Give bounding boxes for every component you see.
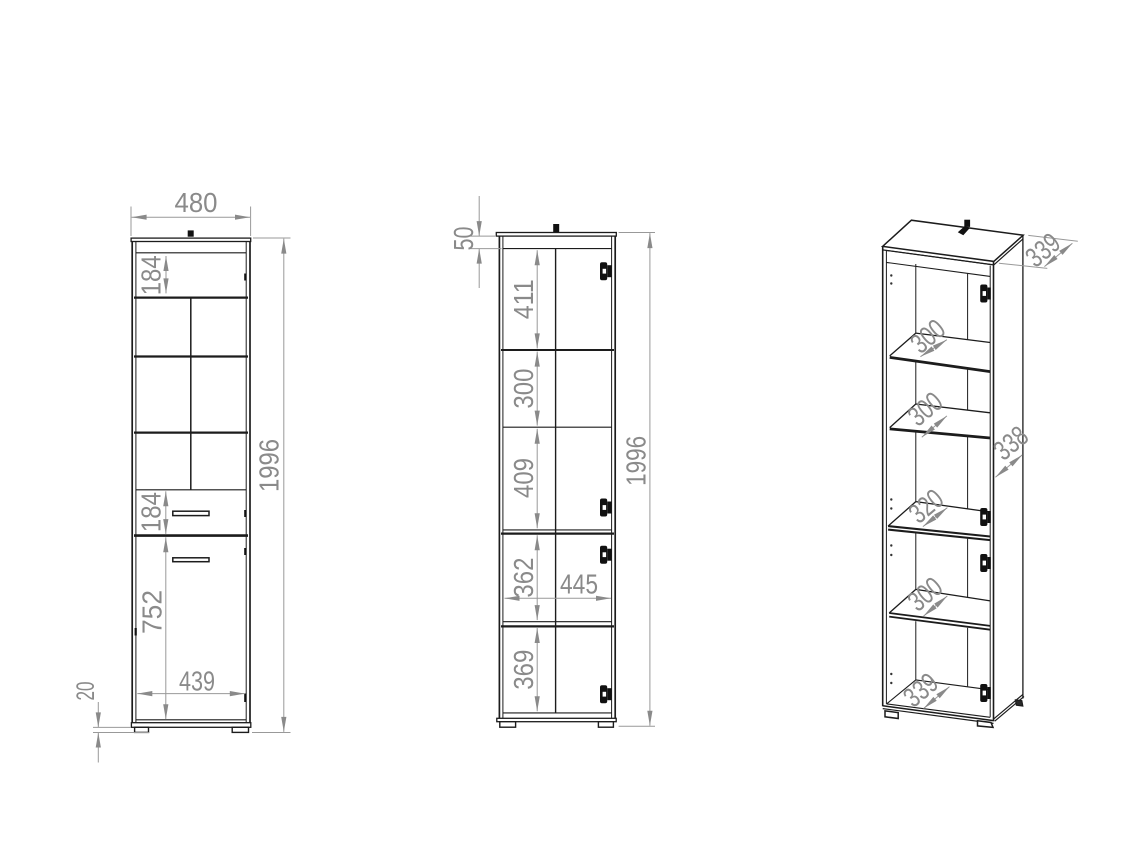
svg-text:362: 362 — [508, 558, 539, 598]
svg-text:184: 184 — [136, 255, 167, 295]
svg-text:1996: 1996 — [253, 439, 284, 492]
svg-text:1996: 1996 — [621, 436, 652, 486]
svg-text:184: 184 — [136, 492, 167, 532]
svg-text:50: 50 — [448, 227, 479, 251]
svg-text:409: 409 — [508, 458, 539, 498]
svg-text:20: 20 — [72, 682, 100, 701]
svg-text:445: 445 — [560, 568, 598, 599]
svg-text:480: 480 — [175, 187, 218, 218]
svg-text:369: 369 — [508, 650, 539, 690]
svg-text:300: 300 — [508, 369, 539, 409]
svg-text:752: 752 — [136, 590, 167, 634]
svg-text:411: 411 — [508, 279, 539, 319]
svg-text:439: 439 — [179, 665, 215, 696]
